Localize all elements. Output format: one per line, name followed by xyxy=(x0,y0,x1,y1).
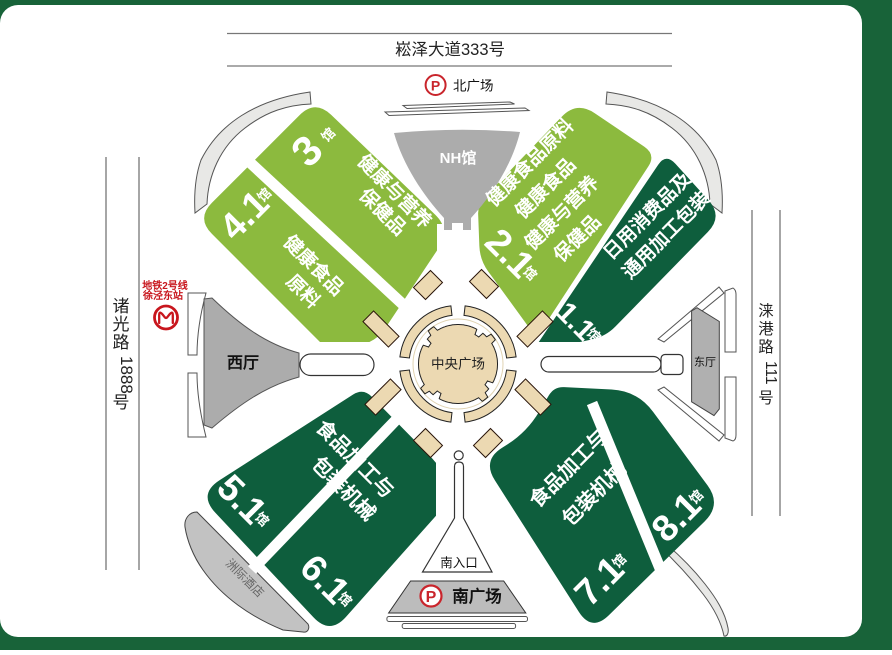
svg-text:P: P xyxy=(431,78,440,94)
svg-text:东厅: 东厅 xyxy=(694,356,716,369)
svg-text:南入口: 南入口 xyxy=(440,555,478,570)
svg-text:北广场: 北广场 xyxy=(453,79,494,94)
svg-text:崧泽大道333号: 崧泽大道333号 xyxy=(395,40,505,59)
svg-text:P: P xyxy=(426,589,437,606)
svg-text:号: 号 xyxy=(758,389,774,407)
svg-text:西厅: 西厅 xyxy=(227,354,259,372)
svg-text:涞: 涞 xyxy=(758,302,774,320)
svg-text:1888: 1888 xyxy=(117,356,136,394)
svg-text:诸: 诸 xyxy=(113,297,130,316)
svg-text:光: 光 xyxy=(113,315,130,334)
svg-text:NH馆: NH馆 xyxy=(440,149,477,167)
svg-text:路: 路 xyxy=(758,338,774,356)
svg-text:徐泾东站: 徐泾东站 xyxy=(142,289,183,302)
svg-text:号: 号 xyxy=(113,393,130,412)
svg-text:111: 111 xyxy=(762,361,779,385)
svg-text:港: 港 xyxy=(758,320,774,338)
svg-text:南广场: 南广场 xyxy=(452,586,502,606)
svg-text:路: 路 xyxy=(113,333,130,352)
svg-text:中央广场: 中央广场 xyxy=(431,357,485,372)
